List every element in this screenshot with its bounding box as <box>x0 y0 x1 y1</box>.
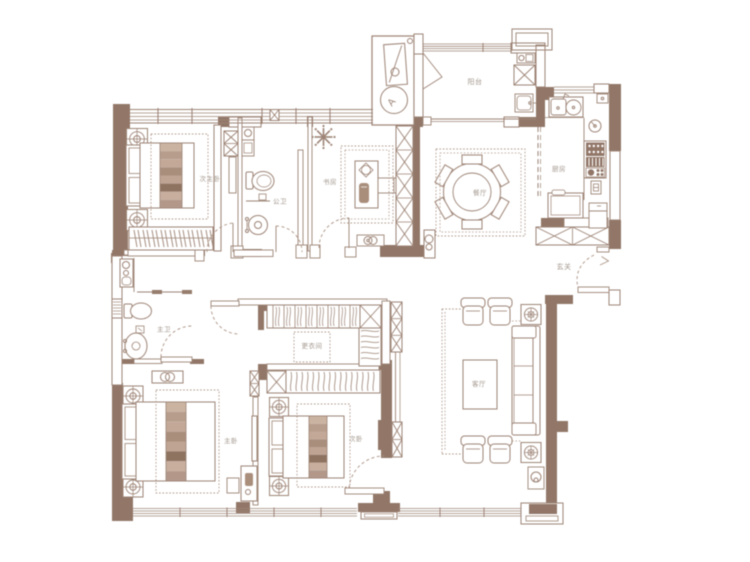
svg-text:次卧: 次卧 <box>349 434 363 443</box>
svg-text:客厅: 客厅 <box>472 379 486 388</box>
svg-text:书房: 书房 <box>323 177 337 186</box>
svg-text:阳台: 阳台 <box>468 77 483 86</box>
svg-text:主卫: 主卫 <box>157 325 171 334</box>
svg-text:更衣间: 更衣间 <box>302 341 323 350</box>
svg-text:玄关: 玄关 <box>557 262 572 271</box>
svg-text:次主卧: 次主卧 <box>200 174 221 183</box>
svg-text:厨房: 厨房 <box>552 164 566 173</box>
svg-text:主卧: 主卧 <box>224 436 238 445</box>
svg-text:公卫: 公卫 <box>273 198 287 206</box>
svg-text:餐厅: 餐厅 <box>473 188 487 197</box>
